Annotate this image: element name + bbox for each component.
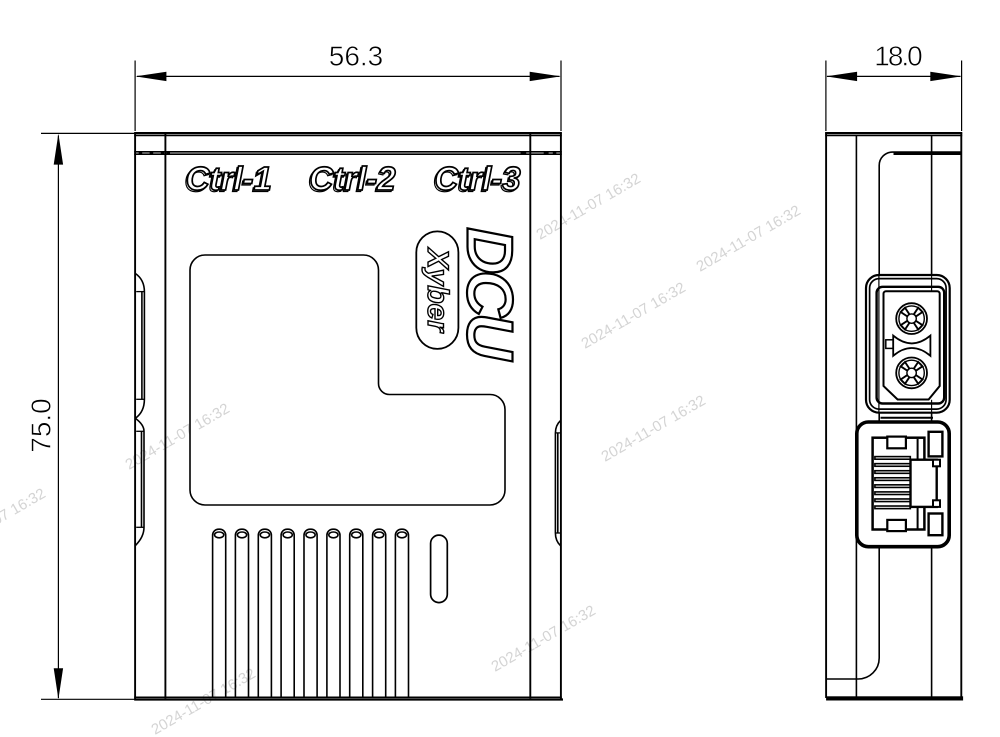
svg-text:DCU: DCU <box>454 227 527 362</box>
svg-text:56.3: 56.3 <box>329 41 384 72</box>
svg-text:Xyber: Xyber <box>421 247 454 335</box>
svg-text:Ctrl-3: Ctrl-3 <box>434 160 520 197</box>
svg-text:Ctrl-1: Ctrl-1 <box>186 160 272 197</box>
svg-text:18.0: 18.0 <box>874 41 922 72</box>
svg-text:Ctrl-2: Ctrl-2 <box>309 160 396 197</box>
svg-text:75.0: 75.0 <box>26 398 57 453</box>
